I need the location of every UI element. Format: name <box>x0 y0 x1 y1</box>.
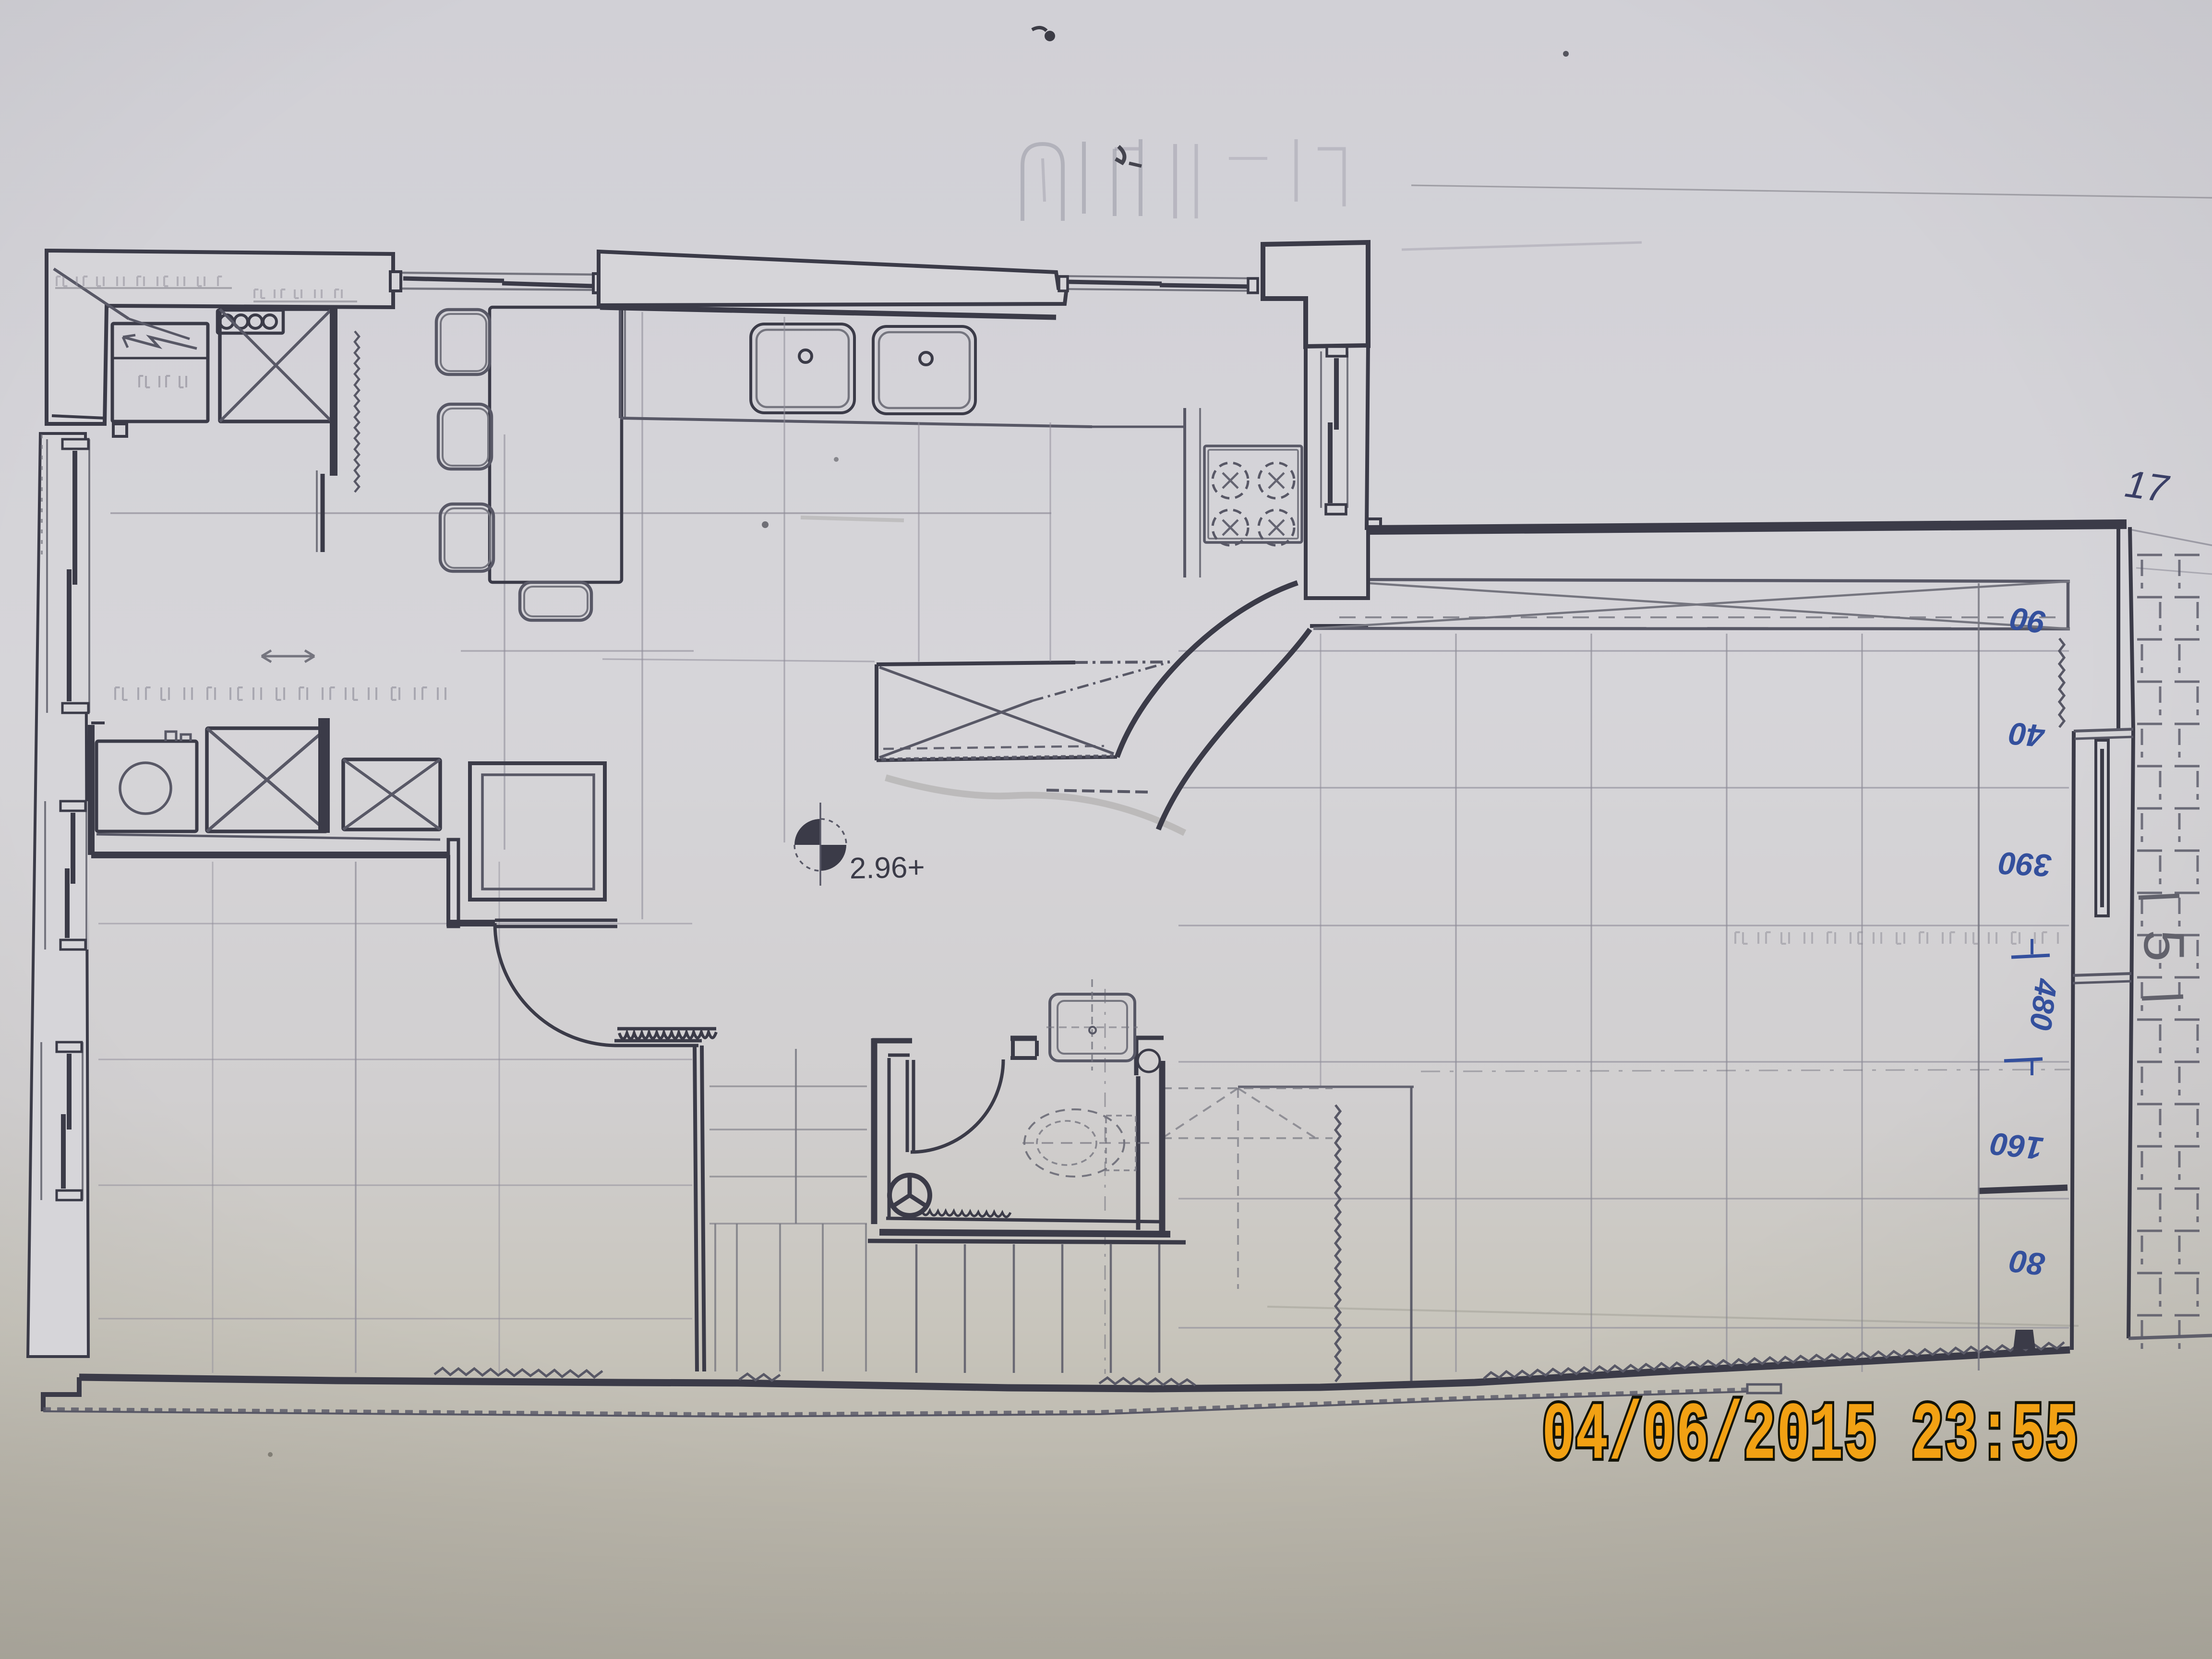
svg-text:04/06/2015 23:55: 04/06/2015 23:55 <box>1542 1390 2079 1483</box>
svg-text:5: 5 <box>2132 930 2196 962</box>
svg-text:90: 90 <box>2008 601 2048 641</box>
svg-text:480: 480 <box>2023 976 2064 1032</box>
svg-text:160: 160 <box>1989 1126 2045 1166</box>
svg-text:80: 80 <box>2008 1243 2047 1283</box>
svg-text:17: 17 <box>2123 462 2172 511</box>
svg-text:2.96+: 2.96+ <box>849 851 925 885</box>
svg-text:40: 40 <box>2008 716 2047 754</box>
svg-text:390: 390 <box>1998 845 2053 884</box>
